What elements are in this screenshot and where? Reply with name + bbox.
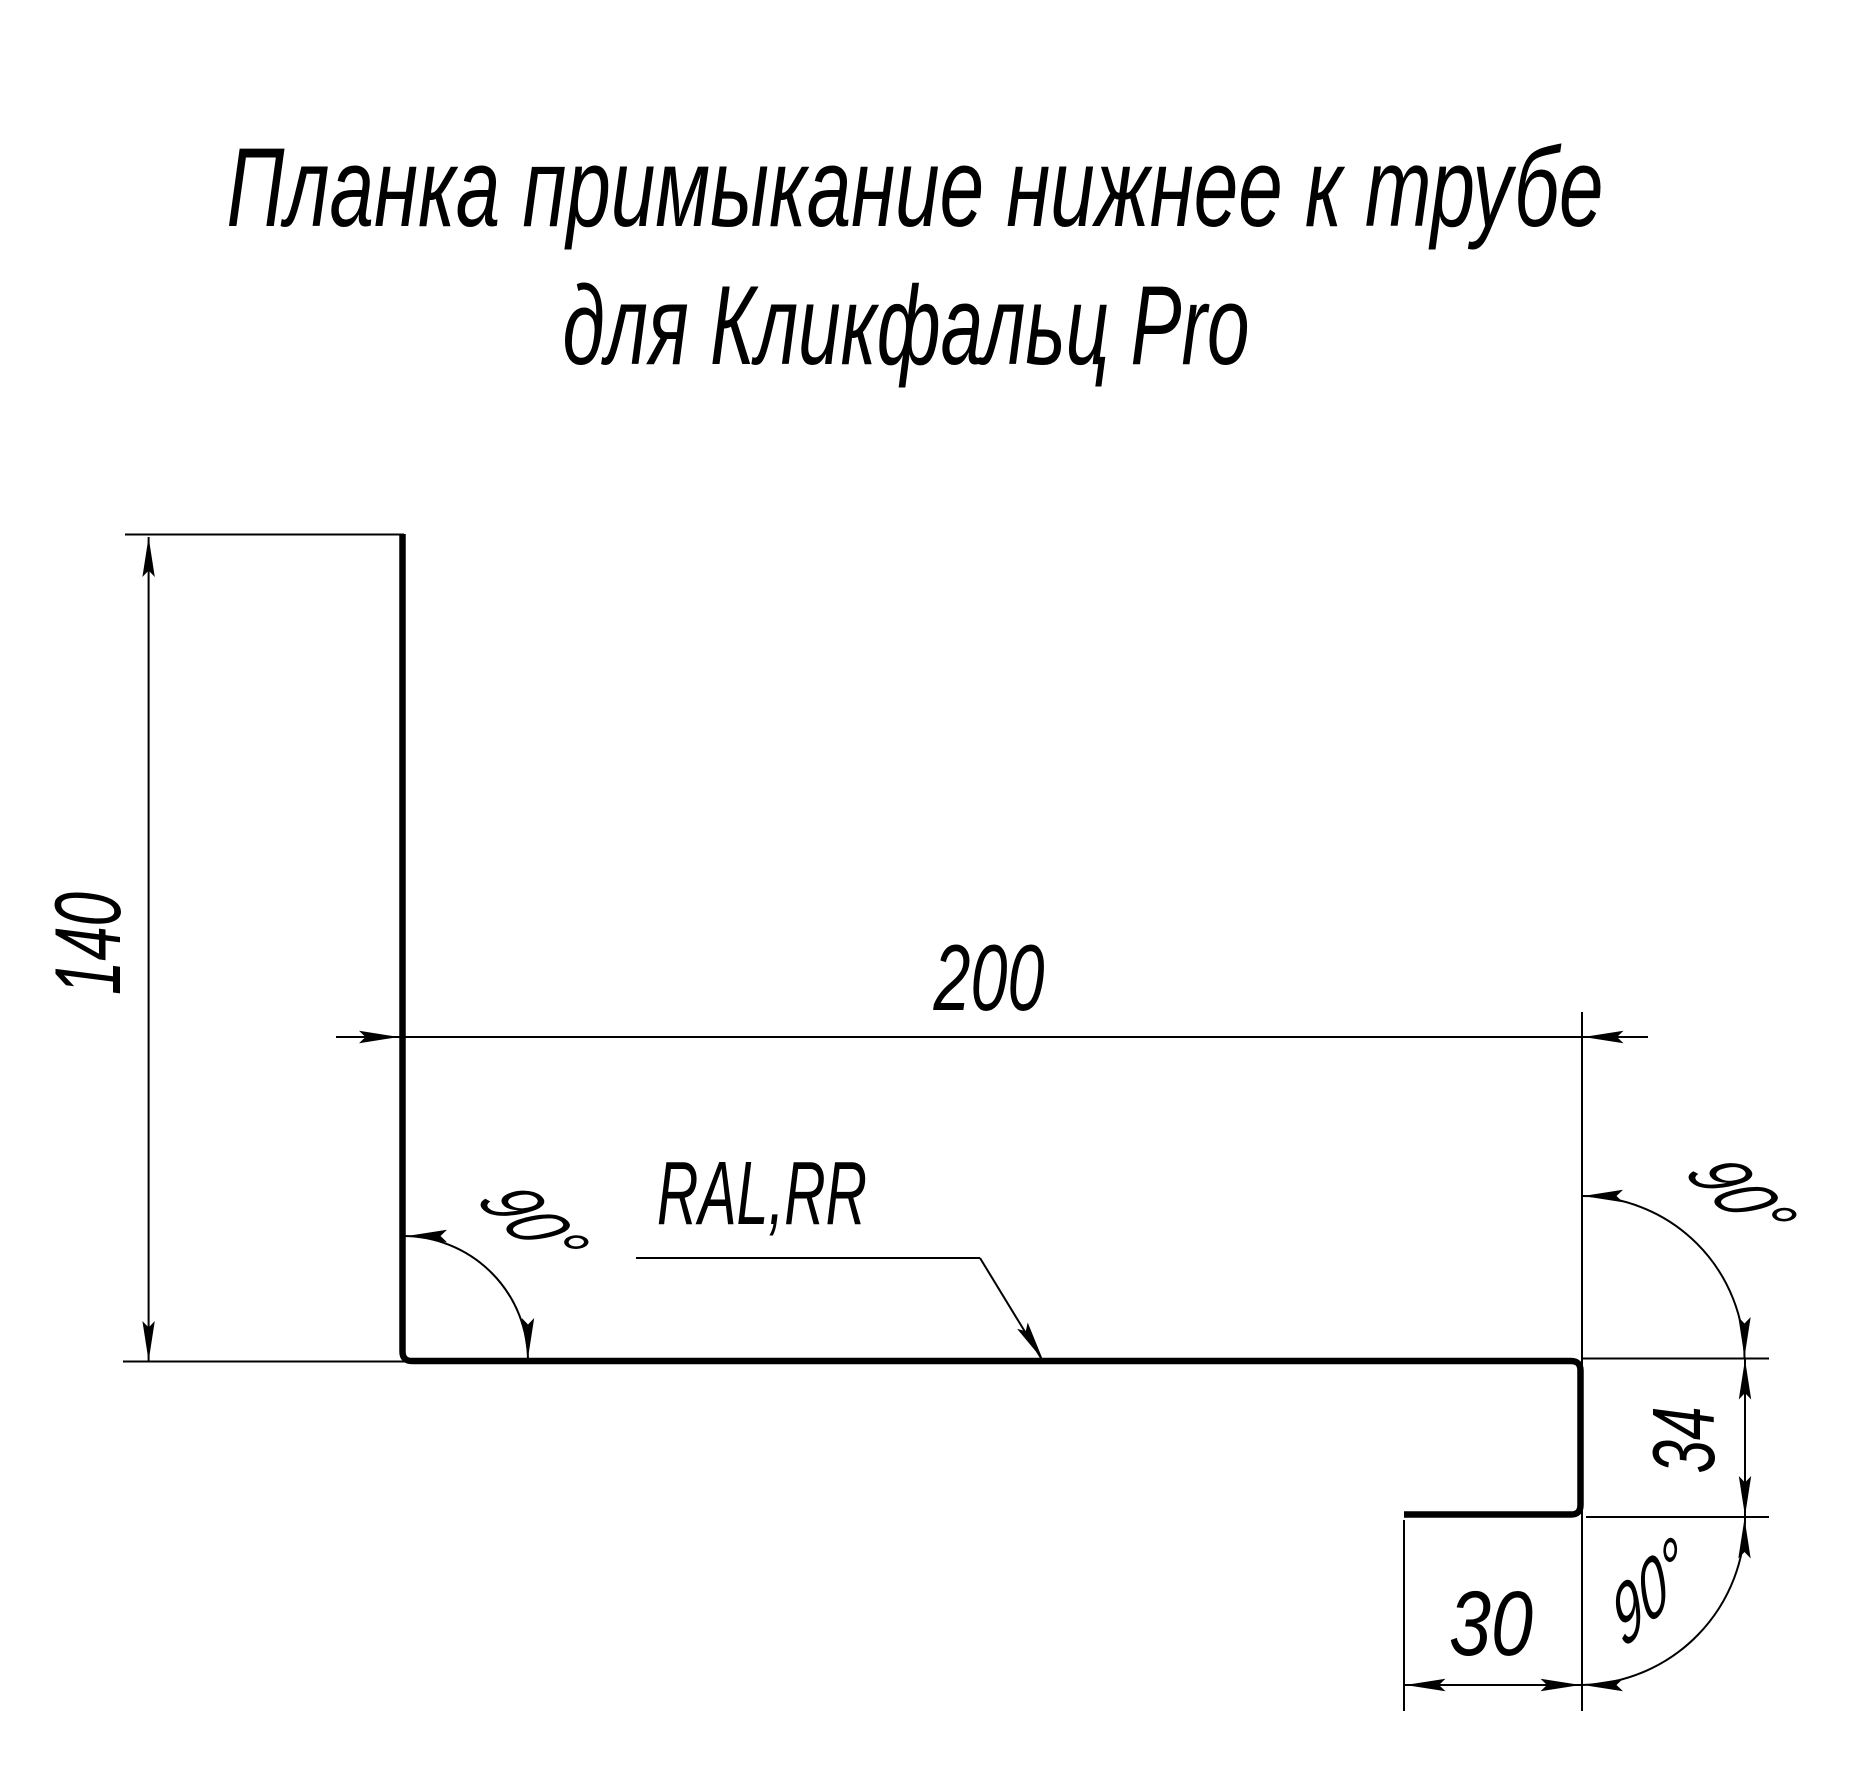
svg-text:для Кликфальц Pro: для Кликфальц Pro	[563, 263, 1250, 388]
svg-text:90°: 90°	[1666, 1150, 1817, 1242]
svg-text:200: 200	[933, 925, 1045, 1030]
svg-text:34: 34	[1634, 1407, 1733, 1474]
svg-text:Планка примыкание нижнее к тру: Планка примыкание нижнее к трубе	[227, 125, 1604, 250]
svg-text:140: 140	[35, 892, 140, 995]
svg-text:RAL,RR: RAL,RR	[657, 1144, 867, 1244]
svg-text:90°: 90°	[1604, 1516, 1695, 1666]
svg-text:30: 30	[1449, 1573, 1533, 1675]
svg-text:90°: 90°	[458, 1177, 609, 1269]
